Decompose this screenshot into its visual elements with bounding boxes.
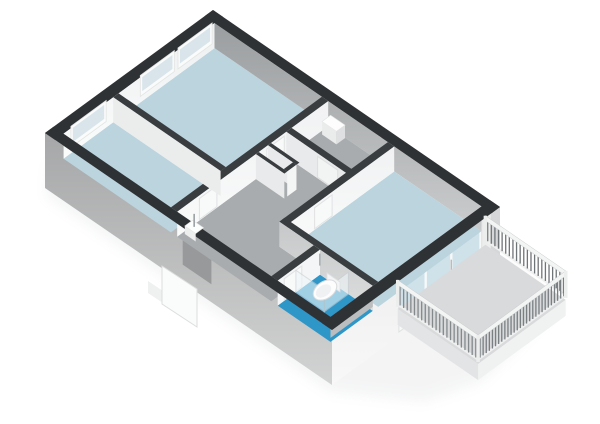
- floorplan-page: [0, 0, 600, 424]
- entrance-step: [148, 281, 163, 303]
- floorplan-3d-view: [0, 0, 600, 424]
